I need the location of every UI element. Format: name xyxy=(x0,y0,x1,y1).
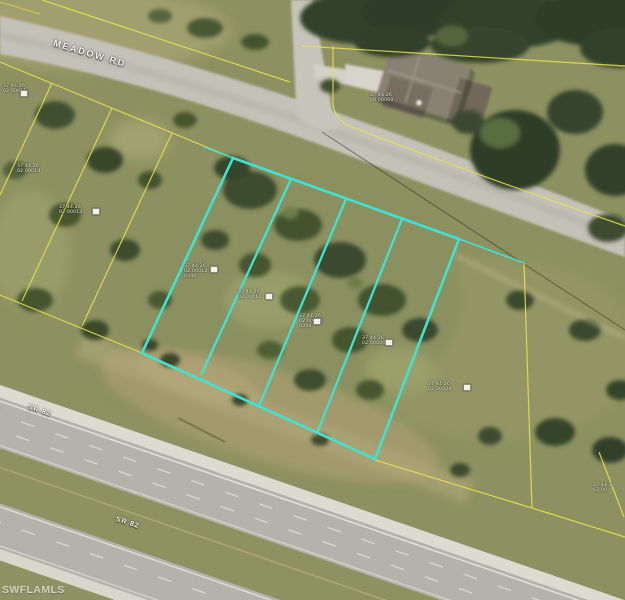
watermark-mls: SWFLAMLS xyxy=(2,584,65,596)
satellite-scene xyxy=(0,0,625,600)
aerial-map: 37 44 2602 0001537 44 2602 0001437 44 26… xyxy=(0,0,625,600)
